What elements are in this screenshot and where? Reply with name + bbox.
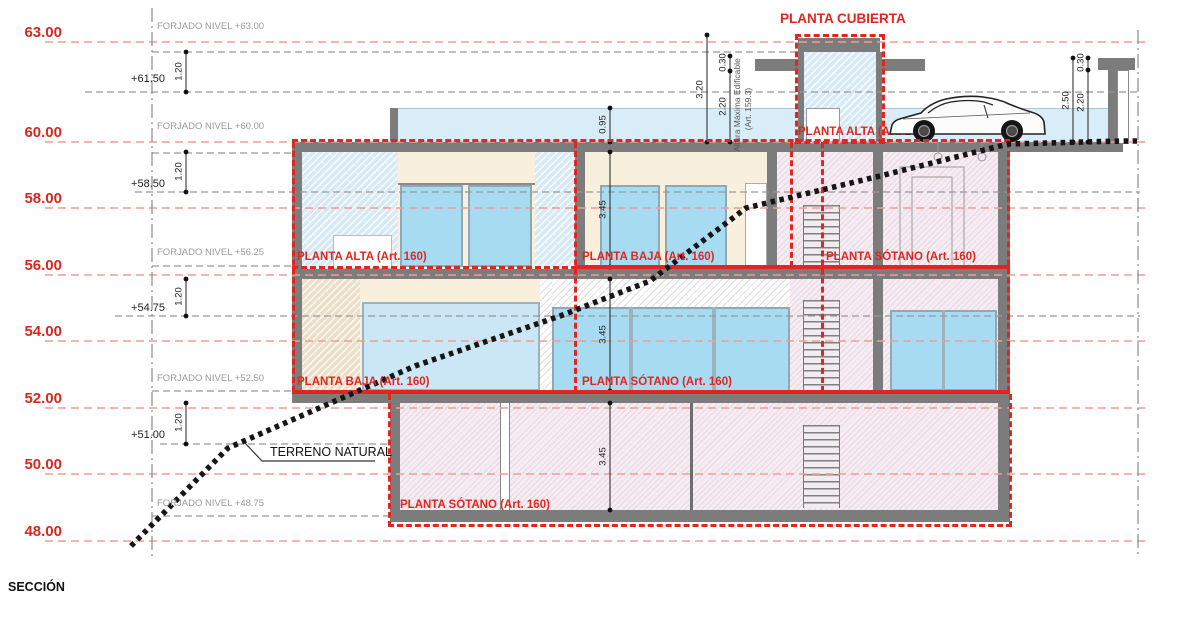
sub-level-label: +61.50 <box>85 73 165 85</box>
level-label: 48.00 <box>14 523 62 540</box>
forjado-label: FORJADO NIVEL +48.75 <box>157 498 264 509</box>
dim-text: 2.50 <box>1061 84 1072 118</box>
dim-text: 0.30 <box>718 46 729 80</box>
dim-text: 3.45 <box>598 440 609 474</box>
level-label: 63.00 <box>14 24 62 41</box>
floor-zone-label: PLANTA BAJA (Art. 160) <box>582 251 714 263</box>
level-label: 58.00 <box>14 190 62 207</box>
section-title: SECCIÓN <box>8 580 65 594</box>
dim-text: 3.45 <box>598 318 609 352</box>
max-height-note: Altura Máxima Edificable <box>732 50 742 160</box>
forjado-label: FORJADO NIVEL +52.50 <box>157 373 264 384</box>
sub-level-label: +58.50 <box>85 178 165 190</box>
dim-text: 1.20 <box>174 406 185 440</box>
dim-text: 3.45 <box>598 193 609 227</box>
level-label: 56.00 <box>14 257 62 274</box>
dim-text: 2.20 <box>1076 86 1087 120</box>
forjado-label: FORJADO NIVEL +60.00 <box>157 121 264 132</box>
floor-zone-label: PLANTA BAJA (Art. 160) <box>297 376 429 388</box>
forjado-label: FORJADO NIVEL +56.25 <box>157 247 264 258</box>
dim-text: 0.95 <box>598 108 609 142</box>
dim-text: 2.20 <box>718 90 729 124</box>
dim-text: 1.20 <box>174 155 185 189</box>
terrain-label: TERRENO NATURAL <box>270 445 392 459</box>
floor-zone-label-cubierta: PLANTA CUBIERTA <box>780 11 900 26</box>
dim-text: 1.20 <box>174 280 185 314</box>
dim-text: 0.30 <box>1076 46 1087 80</box>
section-drawing: PLANTA ALTA (Art. 160) <box>0 0 1200 617</box>
dim-text: 3.20 <box>695 73 706 107</box>
floor-zone-label: PLANTA SÓTANO (Art. 160) <box>582 376 732 388</box>
forjado-label: FORJADO NIVEL +63.00 <box>157 21 264 32</box>
floor-zone-label: PLANTA SÓTANO (Art. 160) <box>400 499 550 511</box>
dim-text: 1.20 <box>174 55 185 89</box>
sub-level-label: +54.75 <box>85 302 165 314</box>
floor-zone-label: PLANTA SÓTANO (Art. 160) <box>826 251 976 263</box>
sub-level-label: +51.00 <box>85 429 165 441</box>
level-label: 50.00 <box>14 456 62 473</box>
level-label: 52.00 <box>14 390 62 407</box>
level-label: 60.00 <box>14 124 62 141</box>
floor-zone-label: PLANTA ALTA (Art. 160) <box>297 251 427 263</box>
terrain-line <box>131 141 1137 546</box>
level-label: 54.00 <box>14 323 62 340</box>
max-height-note-art: (Art. 159.3) <box>743 79 753 139</box>
